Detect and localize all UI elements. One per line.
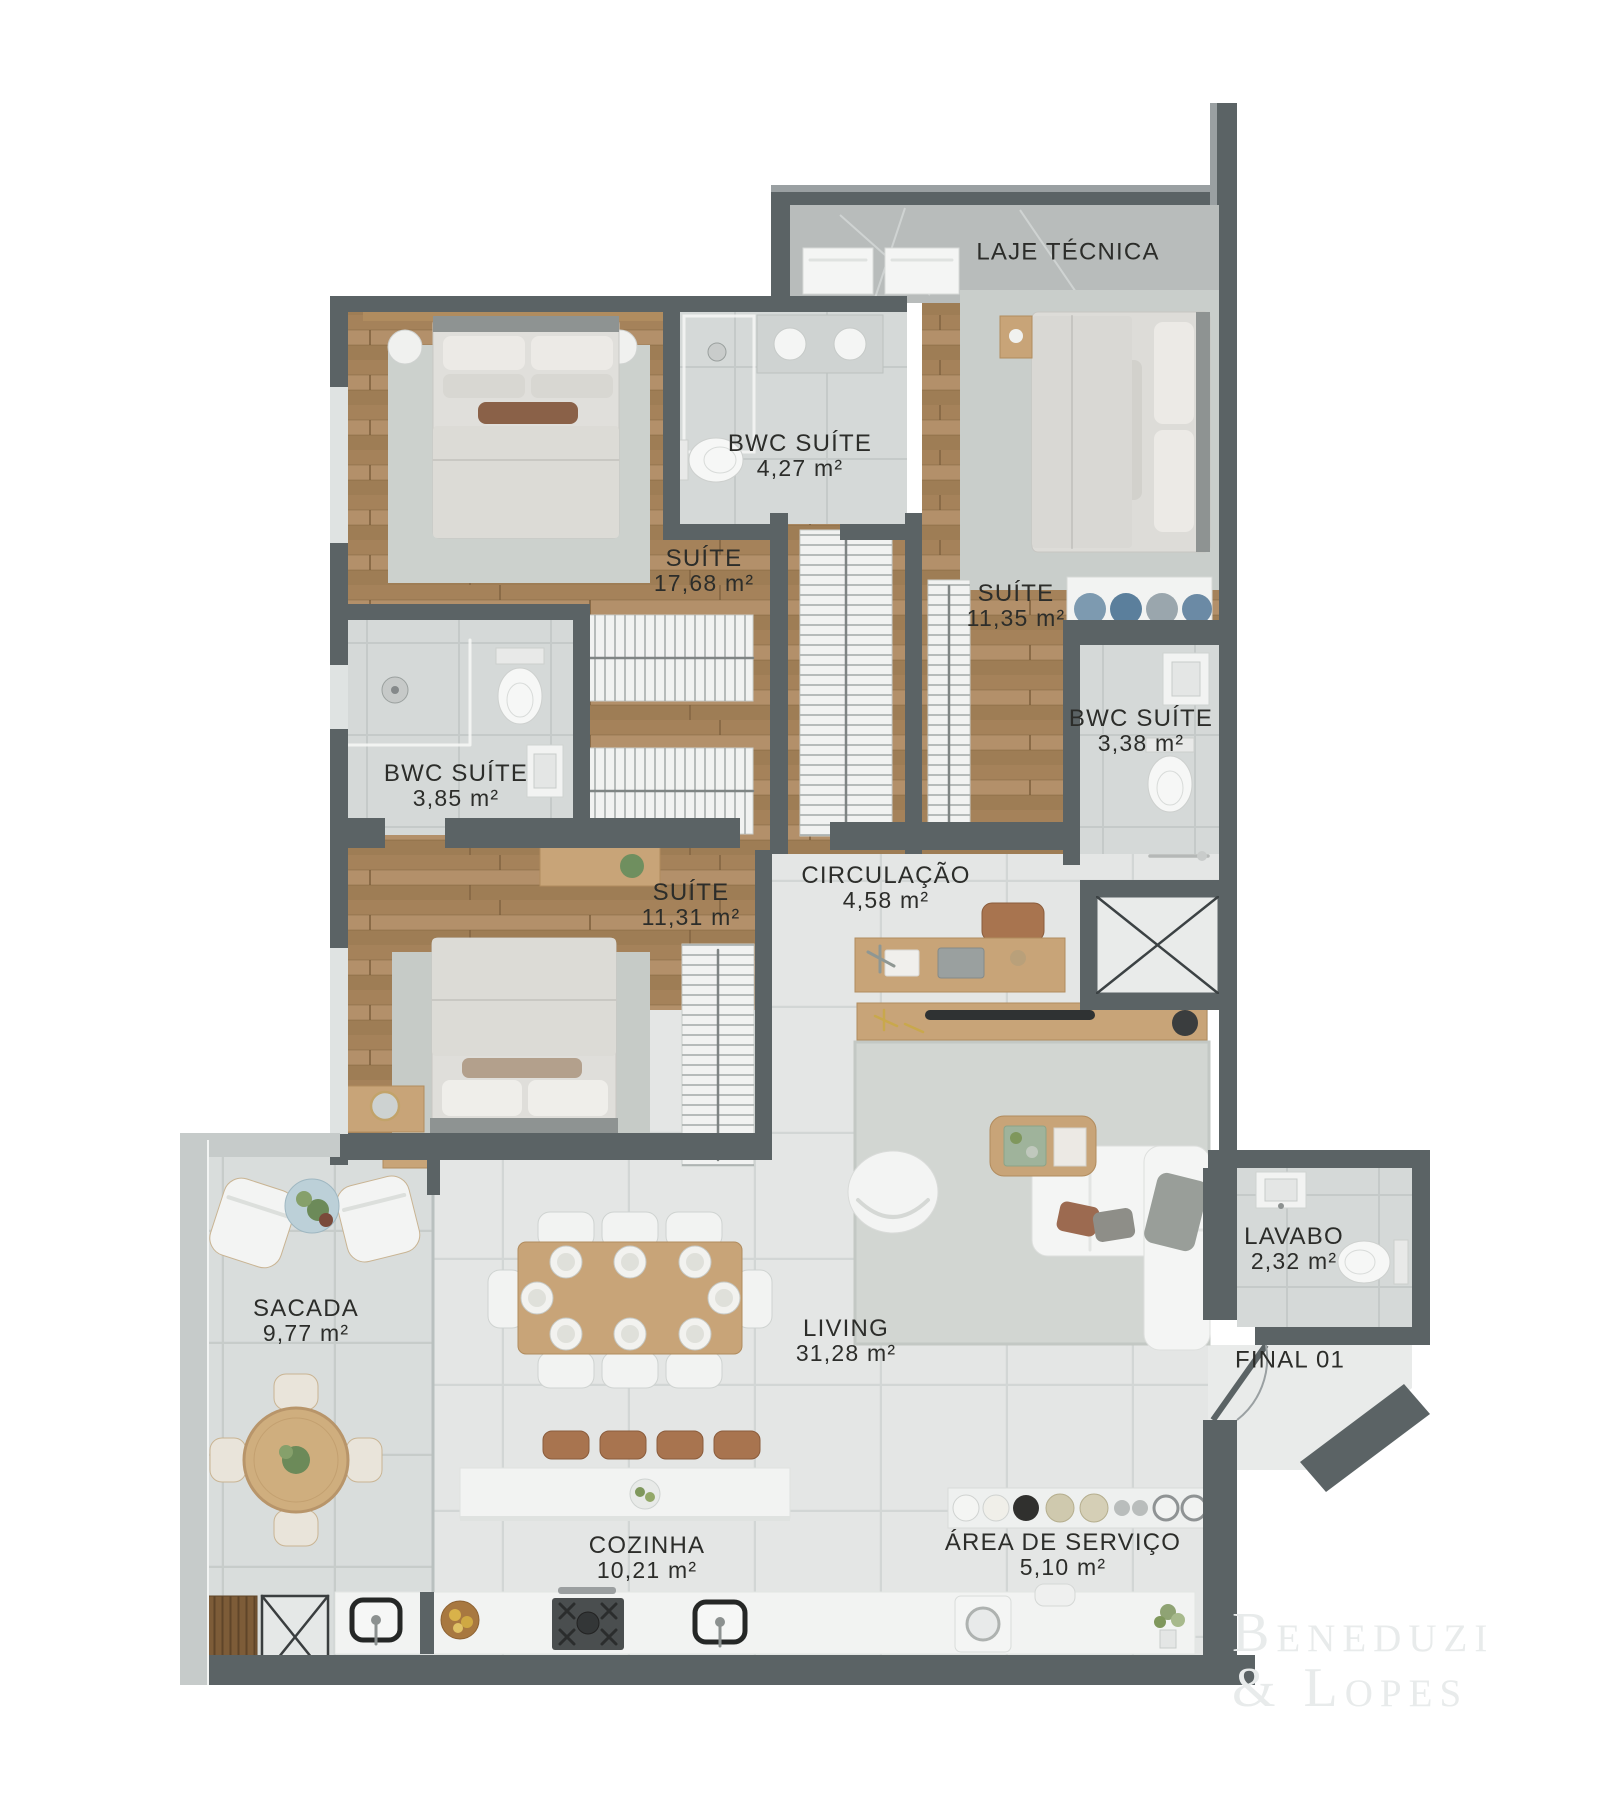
bwc3-floor bbox=[330, 604, 590, 835]
floor-plan-canvas bbox=[0, 0, 1600, 1807]
suite3-closet bbox=[682, 944, 754, 1166]
kitchen-counter bbox=[335, 1584, 1195, 1654]
suite3-bed bbox=[430, 938, 618, 1138]
brand-watermark: Beneduzi & Lopes bbox=[1232, 1606, 1494, 1716]
floor-plan-page: LAJE TÉCNICA BWC SUÍTE 4,27 m² SUÍTE 17,… bbox=[0, 0, 1600, 1807]
walkin-closet-rack bbox=[800, 530, 892, 836]
armchair bbox=[848, 1151, 938, 1233]
suite2-bed bbox=[1000, 312, 1210, 552]
coffee-table bbox=[990, 1116, 1096, 1176]
elevator-shaft bbox=[1096, 896, 1219, 994]
service-shelf bbox=[948, 1488, 1206, 1528]
